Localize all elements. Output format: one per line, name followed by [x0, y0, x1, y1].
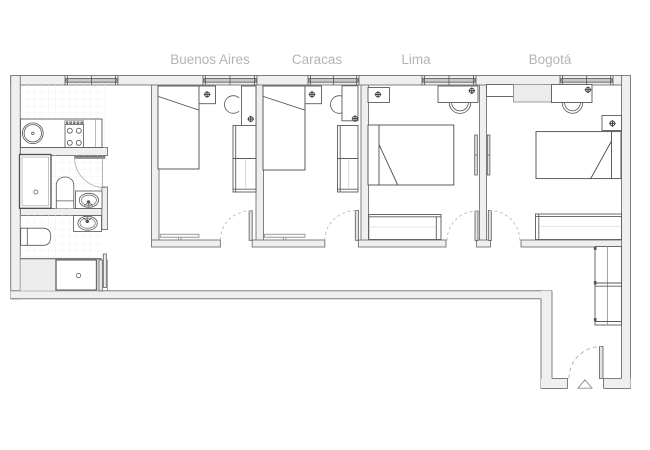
svg-text:Buenos Aires: Buenos Aires: [170, 52, 250, 67]
svg-text:Lima: Lima: [401, 52, 431, 67]
svg-text:Caracas: Caracas: [292, 52, 343, 67]
svg-text:Bogotá: Bogotá: [529, 52, 572, 67]
